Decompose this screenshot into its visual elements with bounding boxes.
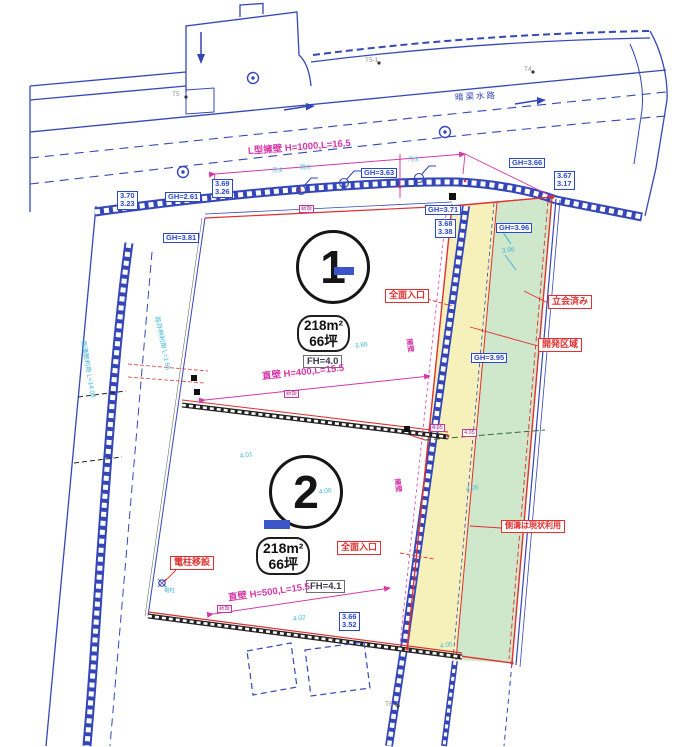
elev-box-2: GH=2.61: [165, 192, 201, 202]
elev-box-1: 3.70 3.23: [117, 191, 138, 210]
building-outlines: [247, 642, 370, 696]
lot2-blue-tag: [264, 520, 290, 529]
tag-entrance-lot2: 全面入口: [337, 541, 381, 555]
tiny-note-3: 新設: [217, 605, 232, 613]
pit-label-2: 雨水: [300, 165, 311, 171]
lot1-area-label: 218m² 66坪: [297, 315, 350, 352]
wall-note-1: 擁壁: [404, 338, 413, 353]
site-plan-page: 暗渠水路 1 218m² 66坪 FH=4.0 2 218m² 66坪 FH=4…: [0, 0, 683, 747]
lot2-area-label: 218m² 66坪: [256, 537, 310, 575]
lot2-fh-label: FH=4.1: [306, 580, 345, 593]
survey-mark-3: T4: [524, 66, 532, 73]
pit-label-1: 汚水: [272, 168, 283, 174]
tiny-note-4: 4.05: [430, 424, 445, 432]
elev-box-8: GH=3.71: [425, 205, 461, 215]
elev-box-5: GH=3.63: [361, 168, 397, 178]
lot1-number: 1: [296, 230, 370, 304]
tag-pole-relocation: 電柱移設: [170, 556, 214, 570]
wall-note-2: 擁壁: [392, 478, 401, 493]
tiny-note-2: 新設: [284, 390, 299, 398]
pole-spot-label: 電柱: [164, 588, 175, 594]
tag-development-area: 開発区域: [538, 338, 582, 352]
elev-box-9: 3.68 3.38: [435, 219, 456, 238]
survey-mark-1: T5: [172, 91, 180, 98]
tag-gutter-asis: 側溝は現状利用: [501, 520, 565, 533]
road-lines: [30, 4, 667, 747]
tag-attended: 立会済み: [548, 295, 592, 309]
lot1-blue-tag: [334, 267, 354, 275]
elev-box-11: GH=3.95: [471, 353, 507, 363]
elev-box-7: 3.67 3.17: [554, 171, 575, 190]
elev-box-12: 3.66 3.52: [339, 612, 360, 631]
tiny-note-1: 新設: [299, 205, 314, 213]
elev-box-3: 3.69 3.26: [212, 179, 233, 198]
tag-entrance-lot1: 全面入口: [385, 289, 429, 303]
survey-mark-4: T6-2: [385, 701, 398, 708]
survey-mark-2: T5-1: [365, 57, 378, 64]
tiny-note-5: 4.05: [462, 429, 477, 437]
pit-label-3: 汚水: [408, 157, 419, 163]
elev-box-10: GH=3.96: [496, 223, 532, 233]
elev-box-4: GH=3.81: [163, 233, 199, 243]
elev-box-6: GH=3.66: [509, 158, 545, 168]
